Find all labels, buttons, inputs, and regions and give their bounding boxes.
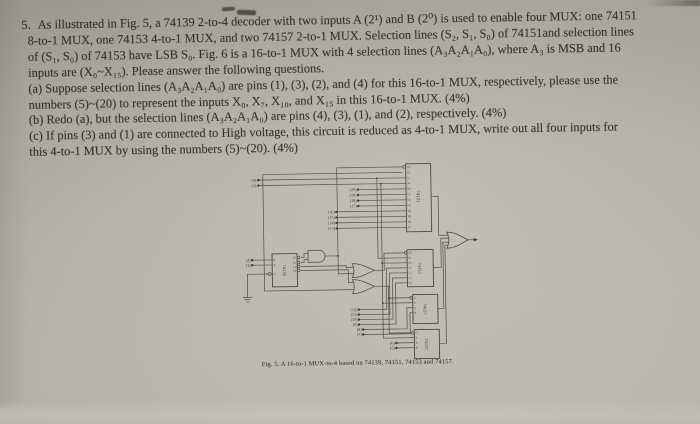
svg-text:D4: D4	[408, 210, 412, 213]
svg-text:Y2: Y2	[293, 266, 297, 269]
svg-text:C2: C2	[409, 277, 413, 280]
or-gate-final	[447, 232, 469, 248]
svg-text:A: A	[416, 342, 418, 345]
svg-text:(14): (14)	[328, 220, 336, 225]
input-pin-labels: (4) (3) (2) (1) (20) (19) (18) (17) (16)…	[244, 175, 395, 352]
svg-text:(18): (18)	[350, 198, 358, 203]
pin-labels-74153: EN S1 S0 C0 C1 C2 C3	[408, 252, 412, 285]
svg-text:C1: C1	[409, 272, 413, 275]
svg-text:(19): (19)	[350, 192, 358, 197]
svg-text:(13): (13)	[328, 226, 336, 231]
photo-page: 5.As illustrated in Fig. 5, a 74139 2-to…	[0, 0, 700, 424]
chip-name-74157-a: 74157	[422, 303, 427, 315]
svg-text:D7: D7	[408, 226, 412, 229]
svg-text:S1: S1	[407, 177, 411, 180]
svg-text:D1: D1	[407, 193, 411, 196]
svg-text:(7): (7)	[357, 332, 363, 337]
svg-text:D6: D6	[408, 221, 412, 224]
svg-text:S0: S0	[408, 262, 412, 265]
svg-text:B: B	[416, 347, 418, 350]
svg-text:C3: C3	[409, 282, 413, 285]
question-number: 5.	[21, 18, 38, 32]
svg-text:G: G	[414, 297, 416, 300]
svg-text:B: B	[414, 312, 416, 315]
svg-text:A: A	[414, 307, 416, 310]
svg-text:S: S	[416, 337, 418, 340]
svg-text:(3): (3)	[251, 183, 257, 188]
svg-text:Y3: Y3	[293, 270, 297, 273]
chip-name-74151: 74151	[415, 190, 420, 203]
svg-text:Y0: Y0	[293, 257, 297, 260]
svg-text:G: G	[416, 332, 418, 335]
chip-name-74139: 74139	[282, 265, 287, 277]
output-arrow	[474, 238, 478, 241]
question-block: 5.As illustrated in Fig. 5, a 74139 2-to…	[0, 0, 699, 161]
svg-text:S: S	[414, 302, 416, 305]
svg-text:(17): (17)	[350, 203, 358, 208]
svg-text:D2: D2	[407, 199, 411, 202]
circuit-figure: 74151 74139 74153 74157 74157 EN S2 S1 S…	[226, 154, 479, 364]
or-gate-1	[352, 263, 374, 277]
svg-text:B: B	[273, 259, 275, 262]
svg-text:D3: D3	[408, 204, 412, 207]
svg-text:S0: S0	[407, 182, 411, 185]
svg-text:D0: D0	[407, 188, 411, 191]
svg-text:(1): (1)	[246, 263, 252, 268]
svg-text:Y1: Y1	[293, 262, 297, 265]
svg-text:C0: C0	[409, 267, 413, 270]
svg-text:(4): (4)	[251, 178, 257, 183]
svg-text:(15): (15)	[328, 215, 336, 220]
svg-text:D5: D5	[408, 215, 412, 218]
paper-bottom-edge	[0, 401, 700, 424]
page-content: 5.As illustrated in Fig. 5, a 74139 2-to…	[0, 0, 700, 424]
svg-text:G: G	[274, 273, 276, 276]
svg-text:EN: EN	[408, 252, 412, 255]
svg-text:(20): (20)	[349, 187, 357, 192]
chip-name-74157-b: 74157	[424, 338, 429, 350]
pin-labels-74151: EN S2 S1 S0 D0 D1 D2 D3 D4 D5 D6 D7	[407, 166, 412, 230]
svg-text:EN: EN	[407, 166, 411, 169]
enable-bubbles	[267, 165, 415, 336]
and-gate	[308, 250, 325, 262]
pin-labels-74157-a: G S A B	[414, 297, 416, 315]
svg-text:A: A	[273, 264, 275, 267]
svg-text:S1: S1	[408, 257, 412, 260]
svg-text:(5): (5)	[390, 345, 396, 350]
or-gate-2	[352, 279, 374, 293]
chip-name-74153: 74153	[417, 262, 422, 274]
svg-text:S2: S2	[407, 171, 411, 174]
svg-text:(16): (16)	[328, 209, 336, 214]
pin-labels-74157-b: G S A B	[416, 332, 418, 350]
wires	[241, 166, 475, 351]
